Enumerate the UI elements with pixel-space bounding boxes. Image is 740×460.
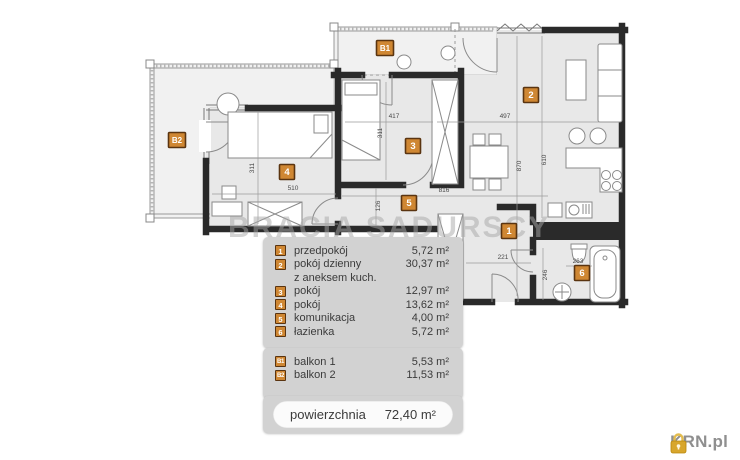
room-area: 5,53 m²	[412, 356, 449, 368]
floorplan-page: BRACIA SADURSCY B2B123451641749731131151…	[0, 0, 740, 460]
legend-row: 6łazienka5,72 m²	[263, 325, 463, 339]
dimension-label: 870	[516, 160, 523, 171]
room-list: 1przedpokój5,72 m²2pokój dzienny30,37 m²…	[263, 244, 463, 339]
plan-badge-label: 3	[410, 141, 415, 152]
balcony1-stool2	[441, 46, 455, 60]
legend-balconies: B1balkon 15,53 m²B2balkon 211,53 m²	[263, 348, 463, 399]
room3-bed	[342, 80, 380, 160]
plan-badge-label: B2	[172, 136, 183, 145]
room-label: przedpokój	[294, 245, 412, 257]
padlock-icon	[670, 432, 687, 454]
room-badge: 4	[275, 299, 286, 310]
room-label: łazienka	[294, 326, 412, 338]
room-label: balkon 2	[294, 369, 406, 381]
room-area: 4,00 m²	[412, 312, 449, 324]
room-area: 5,72 m²	[412, 326, 449, 338]
legend-total: powierzchnia 72,40 m²	[263, 396, 463, 433]
room-badge: 5	[275, 313, 286, 324]
room-label: balkon 1	[294, 356, 412, 368]
dimension-label: 263	[573, 258, 584, 265]
dimension-label: 311	[249, 162, 256, 173]
room-badge: 1	[275, 245, 286, 256]
dimension-label: 417	[389, 113, 400, 120]
legend-row: B2balkon 211,53 m²	[263, 369, 463, 383]
legend-row: 3pokój12,97 m²	[263, 285, 463, 299]
room-label-line2: z aneksem kuch.	[294, 272, 449, 284]
dimension-label: 221	[498, 254, 509, 261]
legend-rooms: 1przedpokój5,72 m²2pokój dzienny30,37 m²…	[263, 237, 463, 348]
plan-badge-label: 5	[406, 198, 412, 209]
room-badge: 3	[275, 286, 286, 297]
dimension-label: 610	[541, 154, 548, 165]
legend-row: B1balkon 15,53 m²	[263, 355, 463, 369]
kitchen-sink	[566, 202, 592, 218]
bathtub	[590, 246, 620, 302]
plan-badge-label: 1	[506, 226, 512, 237]
plan-badge-label: 2	[528, 90, 533, 101]
dimension-label: 311	[377, 127, 384, 138]
legend-row: 4pokój13,62 m²	[263, 298, 463, 312]
dimension-label: 497	[500, 113, 511, 120]
plan-badge-label: B1	[380, 44, 391, 53]
room-label: pokój	[294, 285, 406, 297]
washing-machine-icon	[553, 283, 571, 301]
kitchen-stool2	[590, 128, 606, 144]
room-label: komunikacja	[294, 312, 412, 324]
total-area-pill: powierzchnia 72,40 m²	[273, 401, 453, 428]
legend-row: 1przedpokój5,72 m²	[263, 244, 463, 258]
total-value: 72,40 m²	[385, 407, 436, 422]
room-badge: 6	[275, 326, 286, 337]
room-area: 5,72 m²	[412, 245, 449, 257]
balcony-list: B1balkon 15,53 m²B2balkon 211,53 m²	[263, 355, 463, 382]
room-label: pokój	[294, 299, 406, 311]
room4-bed	[228, 112, 332, 158]
room4-nightstand	[222, 186, 236, 199]
dimension-label: 510	[288, 185, 299, 192]
room-badge: 2	[275, 259, 286, 270]
room3-wardrobe	[432, 80, 458, 184]
legend-row-cont: z aneksem kuch.	[263, 271, 463, 285]
dimension-label: 126	[375, 200, 382, 211]
legend-row: 5komunikacja4,00 m²	[263, 312, 463, 326]
room-label: pokój dzienny	[294, 258, 406, 270]
sofa	[598, 44, 622, 122]
krn-logo: KRN.pl	[670, 432, 728, 452]
plan-badge-label: 6	[579, 268, 584, 279]
room-area: 12,97 m²	[406, 285, 449, 297]
plan-badge-label: 4	[284, 167, 290, 178]
room-badge: B2	[275, 370, 286, 381]
dimension-label: 246	[542, 269, 549, 280]
kitchen-stool	[569, 128, 585, 144]
legend-row: 2pokój dzienny30,37 m²	[263, 258, 463, 272]
coffee-table	[566, 60, 586, 100]
room-area: 11,53 m²	[406, 369, 449, 381]
room-badge: B1	[275, 356, 286, 367]
balcony-door-opening	[199, 120, 211, 152]
room-area: 13,62 m²	[406, 299, 449, 311]
room-area: 30,37 m²	[406, 258, 449, 270]
dimension-label: 816	[439, 187, 450, 194]
balcony-1-floor	[334, 27, 497, 75]
balcony1-stool	[397, 55, 411, 69]
total-label: powierzchnia	[290, 407, 366, 422]
